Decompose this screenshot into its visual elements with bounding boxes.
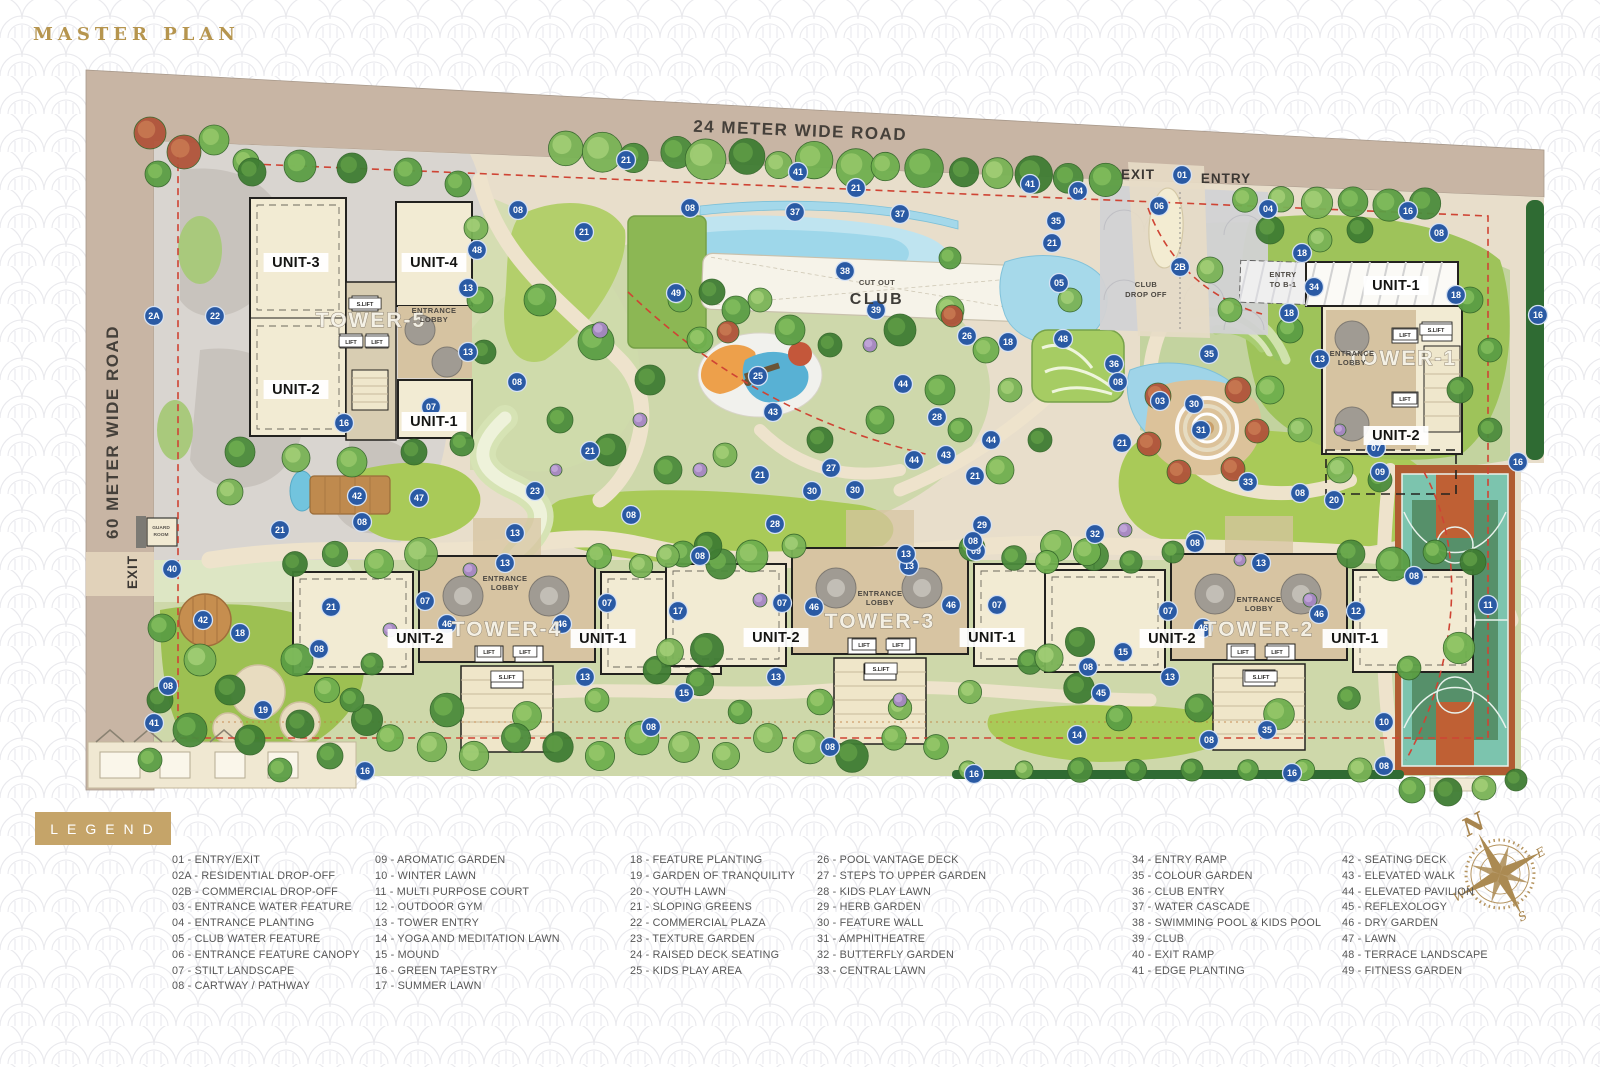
legend-item: 45 - REFLEXOLOGY (1342, 900, 1488, 916)
svg-text:16: 16 (339, 418, 349, 428)
plan-marker-08: 08 (1291, 484, 1310, 503)
tree-icon (1118, 523, 1132, 537)
legend-item: 05 - CLUB WATER FEATURE (172, 932, 360, 948)
svg-text:08: 08 (1083, 662, 1093, 672)
svg-text:13: 13 (1315, 354, 1325, 364)
svg-text:28: 28 (770, 519, 780, 529)
plan-label: LIFT (1393, 329, 1417, 340)
tree-icon (1065, 627, 1094, 656)
svg-text:ROOM: ROOM (154, 532, 169, 538)
plan-marker-18: 18 (231, 624, 250, 643)
tree-icon (215, 675, 245, 705)
svg-text:08: 08 (1295, 488, 1305, 498)
tree-icon (501, 723, 530, 752)
tree-icon (445, 171, 471, 197)
legend-item: 13 - TOWER ENTRY (375, 916, 560, 932)
plan-label: LOBBY (420, 315, 448, 324)
svg-text:16: 16 (1533, 310, 1543, 320)
tree-icon (1256, 216, 1284, 244)
tree-icon (1399, 777, 1425, 803)
tree-icon (582, 132, 622, 172)
plan-marker-13: 13 (459, 343, 478, 362)
svg-text:13: 13 (1165, 672, 1175, 682)
tree-icon (592, 322, 608, 338)
tree-icon (1089, 163, 1122, 196)
plan-marker-18: 18 (999, 333, 1018, 352)
legend-item: 18 - FEATURE PLANTING (630, 853, 795, 869)
tree-icon (217, 479, 243, 505)
plan-label: UNIT-2 (1364, 426, 1429, 445)
plan-label: UNIT-2 (388, 629, 453, 648)
tree-icon (340, 688, 364, 712)
svg-text:08: 08 (1190, 538, 1200, 548)
tree-icon (925, 375, 955, 405)
legend-item: 03 - ENTRANCE WATER FEATURE (172, 900, 360, 916)
plan-label: LOBBY (491, 583, 519, 592)
plan-label: LIFT (365, 336, 389, 347)
plan-marker-08: 08 (508, 373, 527, 392)
plan-marker-13: 13 (897, 545, 916, 564)
tree-icon (134, 117, 166, 149)
plan-label: UNIT-1 (1364, 276, 1429, 295)
svg-text:48: 48 (472, 245, 482, 255)
tree-icon (430, 693, 464, 727)
svg-text:05: 05 (1054, 278, 1064, 288)
plan-label: UNIT-2 (1140, 629, 1205, 648)
svg-text:UNIT-1: UNIT-1 (968, 630, 1016, 646)
plan-marker-19: 19 (254, 701, 273, 720)
legend-item: 38 - SWIMMING POOL & KIDS POOL (1132, 916, 1321, 932)
tree-icon (238, 158, 266, 186)
plan-marker-35: 35 (1047, 212, 1066, 231)
plan-label: LIFT (1231, 646, 1255, 657)
tree-icon (1288, 418, 1312, 442)
tree-icon (543, 732, 573, 762)
plan-label: EXIT (1121, 167, 1155, 182)
tree-icon (884, 314, 916, 346)
svg-text:42: 42 (198, 615, 208, 625)
tree-icon (173, 713, 207, 747)
plan-marker-04: 04 (1259, 200, 1278, 219)
svg-text:GUARD: GUARD (152, 525, 170, 531)
plan-marker-16: 16 (1529, 306, 1548, 325)
legend-item: 15 - MOUND (375, 948, 560, 964)
tree-icon (585, 688, 609, 712)
svg-text:30: 30 (850, 485, 860, 495)
tree-icon (184, 644, 216, 676)
legend-item: 21 - SLOPING GREENS (630, 900, 795, 916)
plan-label: CLUB (1135, 280, 1158, 289)
tree-icon (1256, 376, 1284, 404)
plan-marker-09: 09 (1371, 463, 1390, 482)
svg-text:UNIT-1: UNIT-1 (579, 631, 627, 647)
plan-marker-30: 30 (1185, 395, 1204, 414)
tree-icon (1162, 541, 1184, 563)
tree-icon (765, 151, 792, 178)
plan-label: LOBBY (1245, 604, 1273, 613)
svg-text:TOWER-3: TOWER-3 (825, 610, 935, 633)
tree-icon (1447, 377, 1473, 403)
svg-text:20: 20 (1329, 495, 1339, 505)
plan-marker-48: 48 (468, 241, 487, 260)
legend-item: 30 - FEATURE WALL (817, 916, 986, 932)
plan-marker-08: 08 (964, 532, 983, 551)
plan-marker-08: 08 (310, 640, 329, 659)
svg-text:21: 21 (1117, 438, 1127, 448)
tree-icon (1472, 776, 1496, 800)
tree-icon (268, 758, 292, 782)
tree-icon (1015, 761, 1033, 779)
svg-text:37: 37 (790, 207, 800, 217)
plan-marker-14: 14 (1068, 726, 1087, 745)
svg-text:LOBBY: LOBBY (420, 315, 448, 324)
plan-marker-03: 03 (1151, 392, 1170, 411)
tree-icon (941, 305, 963, 327)
tree-icon (807, 427, 833, 453)
legend-item: 34 - ENTRY RAMP (1132, 853, 1321, 869)
tree-icon (1233, 187, 1258, 212)
plan-marker-13: 13 (506, 524, 525, 543)
tree-icon (524, 284, 556, 316)
svg-text:08: 08 (1409, 571, 1419, 581)
svg-text:49: 49 (671, 288, 681, 298)
tree-icon (807, 689, 833, 715)
tree-icon (1035, 550, 1058, 573)
plan-marker-21: 21 (581, 442, 600, 461)
plan-label: ENTRY (1201, 171, 1251, 186)
plan-label: ENTRY (1269, 270, 1296, 279)
tree-icon (286, 710, 314, 738)
svg-text:44: 44 (986, 435, 996, 445)
east-hedge (1526, 200, 1544, 460)
legend-item: 28 - KIDS PLAY LAWN (817, 885, 986, 901)
tree-icon (364, 549, 393, 578)
tree-icon (654, 456, 682, 484)
plan-marker-07: 07 (598, 594, 617, 613)
plan-marker-08: 08 (642, 718, 661, 737)
svg-text:34: 34 (1309, 282, 1319, 292)
tree-icon (818, 333, 842, 357)
svg-text:18: 18 (1003, 337, 1013, 347)
plan-marker-06: 06 (1150, 197, 1169, 216)
plan-marker-28: 28 (928, 408, 947, 427)
plan-label: S.LIFT (349, 298, 381, 309)
tree-icon (587, 544, 612, 569)
svg-text:2B: 2B (1174, 262, 1186, 272)
plan-label: ROOM (154, 532, 169, 538)
plan-marker-13: 13 (1161, 668, 1180, 687)
legend-item: 16 - GREEN TAPESTRY (375, 964, 560, 980)
svg-text:42: 42 (352, 491, 362, 501)
plan-marker-16: 16 (1283, 764, 1302, 783)
plan-marker-21: 21 (575, 223, 594, 242)
svg-text:CUT OUT: CUT OUT (859, 278, 895, 287)
svg-text:21: 21 (1047, 238, 1057, 248)
svg-text:LIFT: LIFT (345, 340, 357, 346)
plan-marker-36: 36 (1105, 355, 1124, 374)
tree-icon (1181, 759, 1203, 781)
tree-icon (548, 131, 583, 166)
plan-label: LIFT (513, 646, 537, 657)
tree-icon (866, 406, 894, 434)
legend-item: 42 - SEATING DECK (1342, 853, 1488, 869)
tree-icon (775, 315, 805, 345)
plan-marker-31: 31 (1192, 421, 1211, 440)
plan-label: TOWER-3 (825, 610, 935, 633)
svg-text:37: 37 (895, 209, 905, 219)
svg-text:13: 13 (463, 283, 473, 293)
tree-icon (1347, 217, 1373, 243)
tree-icon (836, 740, 869, 773)
svg-text:04: 04 (1073, 186, 1083, 196)
svg-text:21: 21 (970, 471, 980, 481)
svg-text:21: 21 (851, 183, 861, 193)
plan-marker-26: 26 (958, 327, 977, 346)
svg-text:TO B-1: TO B-1 (1270, 280, 1297, 289)
svg-text:S.LIFT: S.LIFT (499, 675, 516, 681)
plan-label: S.LIFT (1420, 324, 1452, 335)
legend-item: 35 - COLOUR GARDEN (1132, 869, 1321, 885)
svg-text:41: 41 (149, 718, 159, 728)
plan-label: UNIT-2 (264, 380, 329, 399)
svg-text:08: 08 (1113, 377, 1123, 387)
plan-label: UNIT-4 (402, 253, 467, 272)
plan-marker-37: 37 (786, 203, 805, 222)
tree-icon (1167, 460, 1191, 484)
plan-marker-20: 20 (1325, 491, 1344, 510)
legend-item: 12 - OUTDOOR GYM (375, 900, 560, 916)
plan-label: ENTRANCE (1330, 349, 1375, 358)
tree-icon (722, 296, 750, 324)
plan-marker-46: 46 (942, 596, 961, 615)
plan-marker-04: 04 (1069, 182, 1088, 201)
svg-text:08: 08 (646, 722, 656, 732)
svg-text:18: 18 (1451, 290, 1461, 300)
svg-text:30: 30 (1189, 399, 1199, 409)
svg-text:08: 08 (1204, 735, 1214, 745)
plan-marker-10: 10 (1375, 713, 1394, 732)
svg-text:LIFT: LIFT (519, 650, 531, 656)
plan-marker-12: 12 (1347, 602, 1366, 621)
svg-text:01: 01 (1177, 170, 1187, 180)
tree-icon (998, 378, 1022, 402)
legend-item: 09 - AROMATIC GARDEN (375, 853, 560, 869)
plan-label: UNIT-1 (1323, 629, 1388, 648)
plan-marker-13: 13 (496, 554, 515, 573)
plan-marker-21: 21 (966, 467, 985, 486)
svg-text:S.LIFT: S.LIFT (1428, 328, 1445, 334)
svg-text:13: 13 (580, 672, 590, 682)
tree-icon (871, 152, 899, 180)
tree-icon (284, 150, 316, 182)
plan-marker-18: 18 (1280, 304, 1299, 323)
plan-marker-41: 41 (145, 714, 164, 733)
legend-item: 32 - BUTTERFLY GARDEN (817, 948, 986, 964)
tree-icon (712, 742, 739, 769)
legend-item: 46 - DRY GARDEN (1342, 916, 1488, 932)
tree-icon (1423, 540, 1447, 564)
tree-icon (225, 437, 255, 467)
tree-icon (550, 464, 562, 476)
plan-label: TOWER-4 (452, 618, 562, 641)
legend-item: 25 - KIDS PLAY AREA (630, 964, 795, 980)
tree-icon (893, 693, 907, 707)
svg-text:18: 18 (1284, 308, 1294, 318)
plan-marker-07: 07 (773, 594, 792, 613)
plan-marker-21: 21 (322, 598, 341, 617)
plan-marker-13: 13 (576, 668, 595, 687)
svg-text:48: 48 (1058, 334, 1068, 344)
svg-text:16: 16 (1513, 457, 1523, 467)
svg-text:16: 16 (1403, 206, 1413, 216)
svg-text:30: 30 (807, 486, 817, 496)
legend-item: 02B - COMMERCIAL DROP-OFF (172, 885, 360, 901)
tree-icon (167, 135, 201, 169)
svg-text:03: 03 (1155, 396, 1165, 406)
plan-label: UNIT-1 (571, 629, 636, 648)
plan-label: LIFT (1265, 646, 1289, 657)
svg-text:04: 04 (1263, 204, 1273, 214)
svg-text:29: 29 (977, 520, 987, 530)
svg-text:35: 35 (1051, 216, 1061, 226)
plan-label: DROP OFF (1125, 290, 1167, 299)
svg-text:UNIT-3: UNIT-3 (272, 255, 320, 271)
svg-text:46: 46 (1314, 609, 1324, 619)
svg-text:08: 08 (513, 205, 523, 215)
tree-icon (657, 545, 680, 568)
svg-text:UNIT-1: UNIT-1 (1372, 278, 1420, 294)
svg-text:ENTRANCE: ENTRANCE (483, 574, 528, 583)
svg-text:07: 07 (777, 598, 787, 608)
plan-marker-2B: 2B (1171, 258, 1190, 277)
plan-marker-16: 16 (965, 765, 984, 784)
svg-text:10: 10 (1379, 717, 1389, 727)
svg-text:36: 36 (1109, 359, 1119, 369)
legend-title-box: LEGEND (35, 812, 171, 845)
svg-text:13: 13 (463, 347, 473, 357)
plan-marker-25: 25 (749, 367, 768, 386)
legend-item: 17 - SUMMER LAWN (375, 979, 560, 995)
legend-item: 27 - STEPS TO UPPER GARDEN (817, 869, 986, 885)
plan-marker-23: 23 (526, 482, 545, 501)
plan-marker-22: 22 (206, 307, 225, 326)
plan-marker-08: 08 (353, 513, 372, 532)
plan-marker-41: 41 (789, 163, 808, 182)
svg-text:UNIT-2: UNIT-2 (752, 630, 800, 646)
tree-icon (685, 139, 726, 180)
tree-icon (728, 700, 752, 724)
plan-label: LOBBY (866, 598, 894, 607)
svg-text:43: 43 (941, 450, 951, 460)
tree-icon (924, 735, 949, 760)
plan-marker-48: 48 (1054, 330, 1073, 349)
svg-text:UNIT-2: UNIT-2 (272, 382, 320, 398)
tree-icon (690, 633, 723, 666)
plan-label: ENTRANCE (483, 574, 528, 583)
tree-icon (1002, 546, 1027, 571)
plan-label: LOBBY (1338, 358, 1366, 367)
svg-text:13: 13 (901, 549, 911, 559)
svg-text:LIFT: LIFT (858, 643, 870, 649)
plaza-green (157, 400, 193, 460)
tree-icon (1238, 760, 1259, 781)
plan-marker-16: 16 (356, 762, 375, 781)
plan-label: CLUB (850, 291, 904, 308)
plan-label: LIFT (1393, 393, 1417, 404)
svg-text:LOBBY: LOBBY (866, 598, 894, 607)
tree-icon (1327, 457, 1353, 483)
legend-item: 24 - RAISED DECK SEATING (630, 948, 795, 964)
svg-text:32: 32 (1090, 529, 1100, 539)
tree-icon (729, 138, 765, 174)
plan-label: UNIT-2 (744, 628, 809, 647)
tree-icon (863, 338, 877, 352)
svg-text:UNIT-2: UNIT-2 (396, 631, 444, 647)
legend-item: 10 - WINTER LAWN (375, 869, 560, 885)
svg-text:ENTRY: ENTRY (1269, 270, 1296, 279)
plan-label: LIFT (339, 336, 363, 347)
plan-label: LIFT (477, 646, 501, 657)
svg-text:07: 07 (420, 596, 430, 606)
svg-text:TOWER-5: TOWER-5 (316, 309, 426, 332)
svg-text:13: 13 (500, 558, 510, 568)
tree-icon (882, 726, 906, 750)
legend-item: 23 - TEXTURE GARDEN (630, 932, 795, 948)
plan-marker-01: 01 (1173, 166, 1192, 185)
plan-label: TOWER-5 (316, 309, 426, 332)
legend-column-4: 26 - POOL VANTAGE DECK27 - STEPS TO UPPE… (817, 853, 986, 979)
svg-text:35: 35 (1204, 349, 1214, 359)
svg-text:26: 26 (962, 331, 972, 341)
legend-item: 41 - EDGE PLANTING (1132, 964, 1321, 980)
plan-label: ENTRANCE (858, 589, 903, 598)
legend-column-6: 42 - SEATING DECK43 - ELEVATED WALK44 - … (1342, 853, 1488, 979)
svg-text:07: 07 (426, 402, 436, 412)
svg-text:ENTRANCE: ENTRANCE (412, 306, 457, 315)
svg-text:14: 14 (1072, 730, 1082, 740)
svg-text:13: 13 (771, 672, 781, 682)
plan-marker-30: 30 (803, 482, 822, 501)
tree-icon (939, 247, 961, 269)
plan-marker-17: 17 (669, 602, 688, 621)
plan-marker-35: 35 (1258, 721, 1277, 740)
svg-text:LIFT: LIFT (1399, 397, 1411, 403)
tree-icon (1225, 377, 1251, 403)
plan-marker-44: 44 (905, 451, 924, 470)
plan-marker-18: 18 (1447, 286, 1466, 305)
svg-text:TOWER-2: TOWER-2 (1204, 618, 1314, 641)
tree-icon (464, 216, 488, 240)
svg-text:07: 07 (1163, 606, 1173, 616)
tree-icon (736, 540, 768, 572)
svg-text:47: 47 (414, 493, 424, 503)
legend-item: 06 - ENTRANCE FEATURE CANOPY (172, 948, 360, 964)
plan-marker-08: 08 (1109, 373, 1128, 392)
svg-text:16: 16 (969, 769, 979, 779)
svg-text:LOBBY: LOBBY (1245, 604, 1273, 613)
svg-text:27: 27 (826, 463, 836, 473)
plan-label: CUT OUT (859, 278, 895, 287)
svg-text:08: 08 (1434, 228, 1444, 238)
legend-item: 19 - GARDEN OF TRANQUILITY (630, 869, 795, 885)
svg-text:21: 21 (585, 446, 595, 456)
tree-icon (1218, 298, 1242, 322)
tree-icon (361, 653, 383, 675)
svg-text:LOBBY: LOBBY (1338, 358, 1366, 367)
plan-marker-08: 08 (1375, 757, 1394, 776)
tree-icon (669, 732, 700, 763)
svg-text:13: 13 (1256, 558, 1266, 568)
